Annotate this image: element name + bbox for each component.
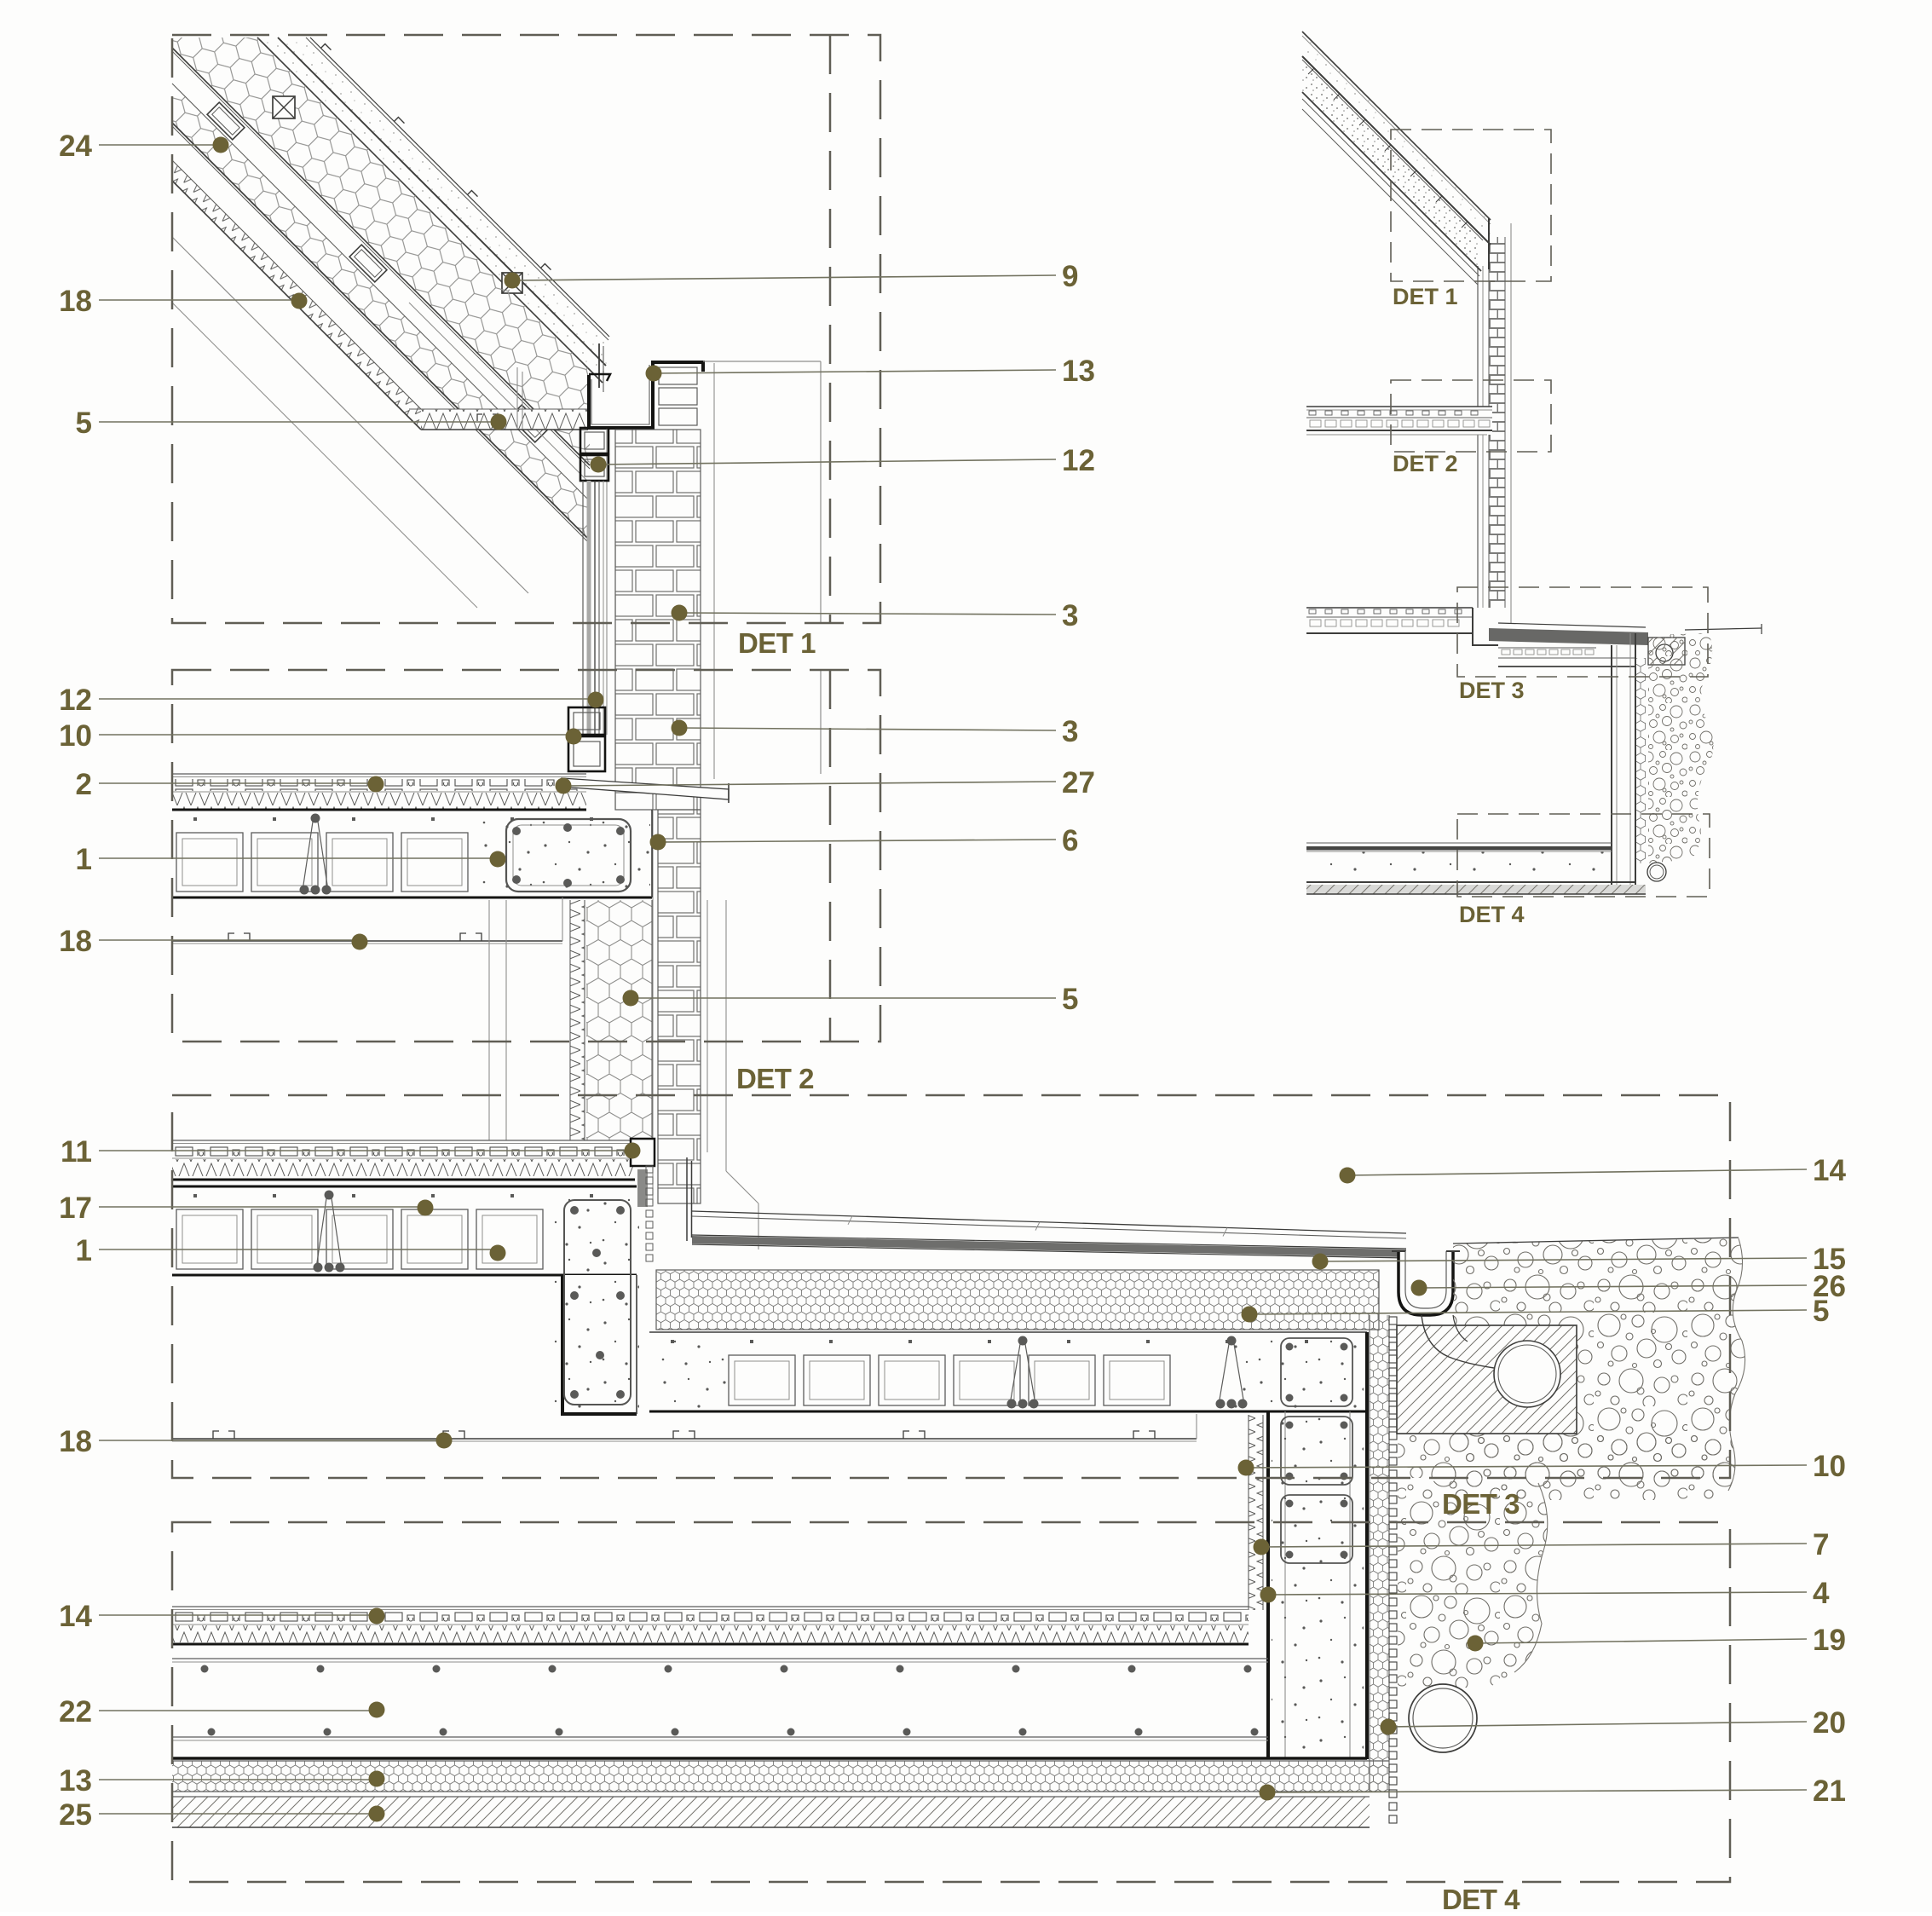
svg-text:18: 18	[59, 285, 92, 318]
svg-text:14: 14	[1813, 1154, 1846, 1187]
svg-text:12: 12	[1062, 444, 1095, 477]
svg-text:24: 24	[59, 130, 92, 163]
svg-text:3: 3	[1062, 599, 1078, 632]
svg-text:12: 12	[59, 684, 92, 717]
svg-text:5: 5	[1062, 983, 1078, 1016]
svg-text:4: 4	[1813, 1577, 1830, 1610]
svg-text:11: 11	[61, 1135, 92, 1169]
svg-text:DET 2: DET 2	[736, 1063, 814, 1094]
svg-text:2: 2	[76, 768, 92, 801]
svg-text:DET 3: DET 3	[1442, 1488, 1520, 1520]
svg-text:1: 1	[76, 1234, 92, 1267]
svg-text:DET 4: DET 4	[1442, 1884, 1520, 1912]
svg-text:3: 3	[1062, 715, 1078, 748]
svg-text:6: 6	[1062, 824, 1078, 857]
svg-text:17: 17	[59, 1192, 92, 1225]
svg-text:5: 5	[1813, 1295, 1829, 1328]
svg-text:21: 21	[1813, 1775, 1846, 1808]
svg-text:22: 22	[59, 1695, 92, 1728]
svg-text:10: 10	[59, 719, 92, 753]
svg-text:14: 14	[59, 1600, 92, 1633]
svg-text:1: 1	[76, 843, 92, 876]
svg-text:DET 1: DET 1	[738, 627, 816, 659]
svg-text:DET 2: DET 2	[1393, 451, 1458, 476]
svg-text:10: 10	[1813, 1450, 1846, 1483]
svg-text:18: 18	[59, 1425, 92, 1458]
svg-text:27: 27	[1062, 766, 1095, 799]
svg-text:7: 7	[1813, 1528, 1829, 1561]
svg-text:20: 20	[1813, 1706, 1846, 1740]
svg-text:5: 5	[76, 407, 92, 440]
svg-text:DET 4: DET 4	[1459, 902, 1525, 927]
svg-text:DET 1: DET 1	[1393, 284, 1458, 309]
svg-text:13: 13	[1062, 355, 1095, 388]
svg-text:18: 18	[59, 925, 92, 958]
svg-text:13: 13	[59, 1764, 92, 1798]
svg-text:DET 3: DET 3	[1459, 678, 1525, 703]
svg-text:9: 9	[1062, 260, 1078, 293]
svg-text:19: 19	[1813, 1624, 1846, 1657]
svg-text:25: 25	[59, 1798, 92, 1832]
